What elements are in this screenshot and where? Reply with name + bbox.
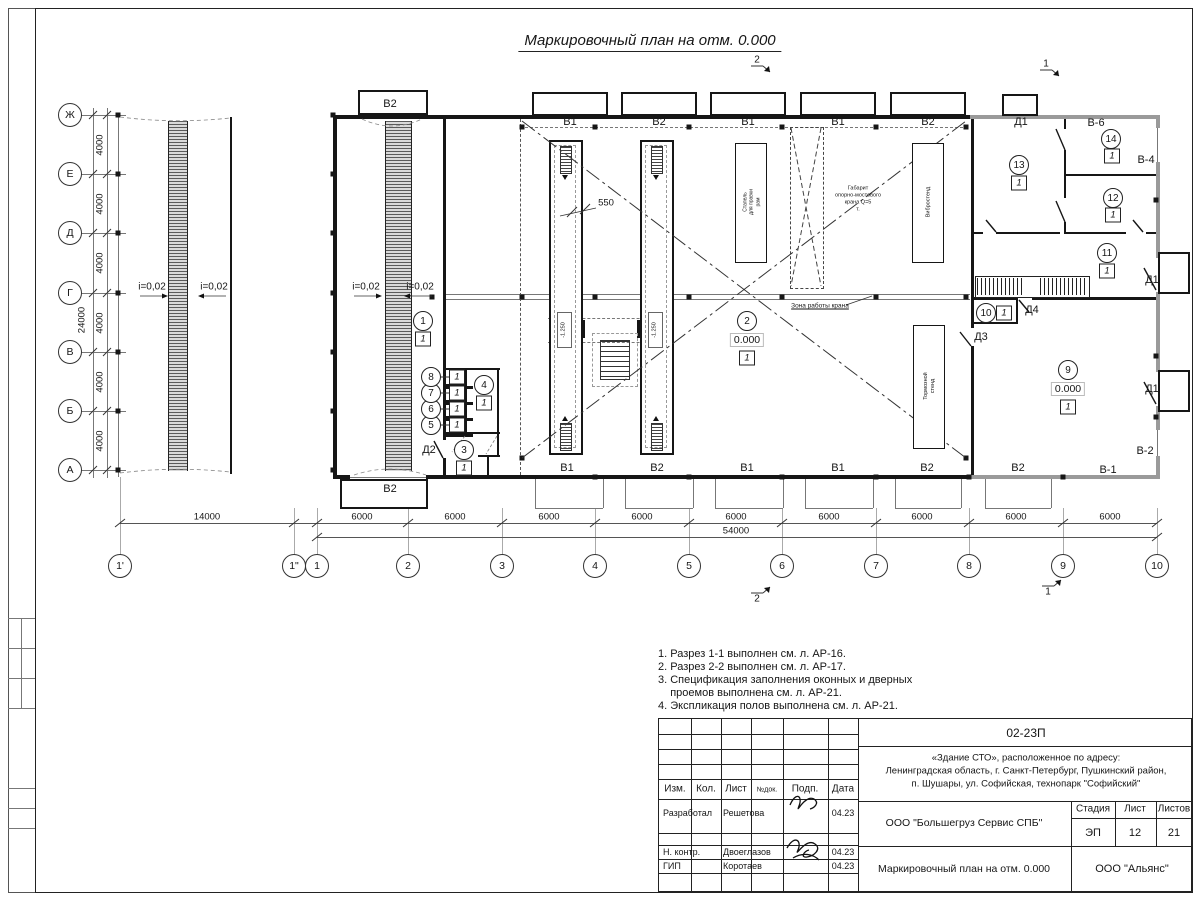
section-arrow [1053, 70, 1059, 76]
section-arrow [1055, 580, 1061, 586]
overlay-linework [0, 0, 1200, 900]
section-arrow [764, 587, 770, 593]
section-arrow [764, 66, 770, 72]
signature [790, 796, 817, 809]
signature [787, 840, 819, 860]
